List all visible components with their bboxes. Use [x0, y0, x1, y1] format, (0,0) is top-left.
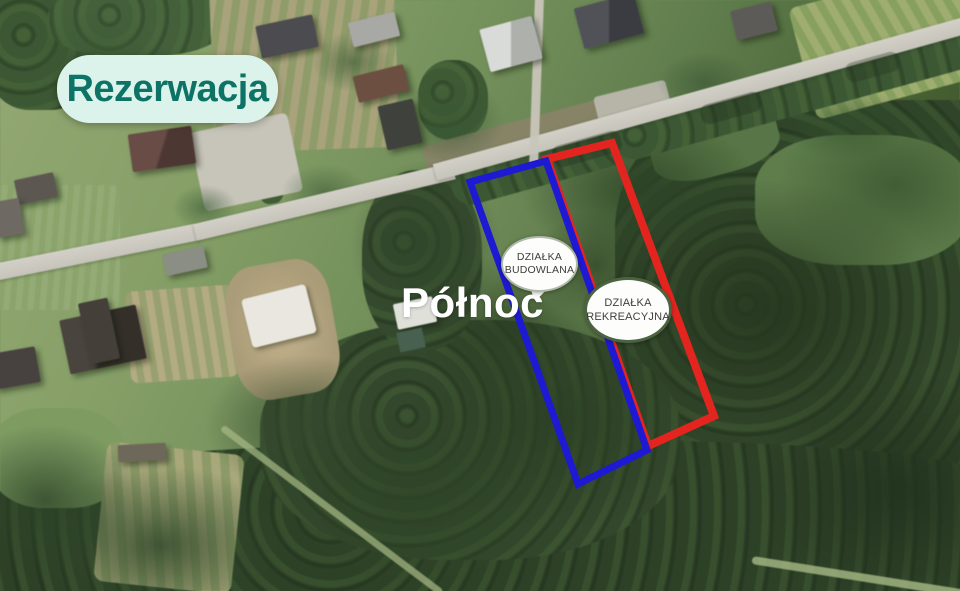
bubble-label-line: BUDOWLANA [505, 264, 574, 277]
bubble-label-line: REKREACYJNA [586, 310, 670, 324]
bubble-label-line: DZIAŁKA [517, 251, 562, 264]
recreational-plot-label-bubble: DZIAŁKA REKREACYJNA [584, 277, 672, 343]
reservation-badge-label: Rezerwacja [66, 68, 268, 111]
listing-aerial-photo: Północ DZIAŁKA BUDOWLANA DZIAŁKA REKREAC… [0, 0, 960, 591]
reservation-badge: Rezerwacja [57, 55, 278, 123]
bubble-label-line: DZIAŁKA [604, 296, 651, 310]
building-plot-label-bubble: DZIAŁKA BUDOWLANA [501, 236, 578, 292]
